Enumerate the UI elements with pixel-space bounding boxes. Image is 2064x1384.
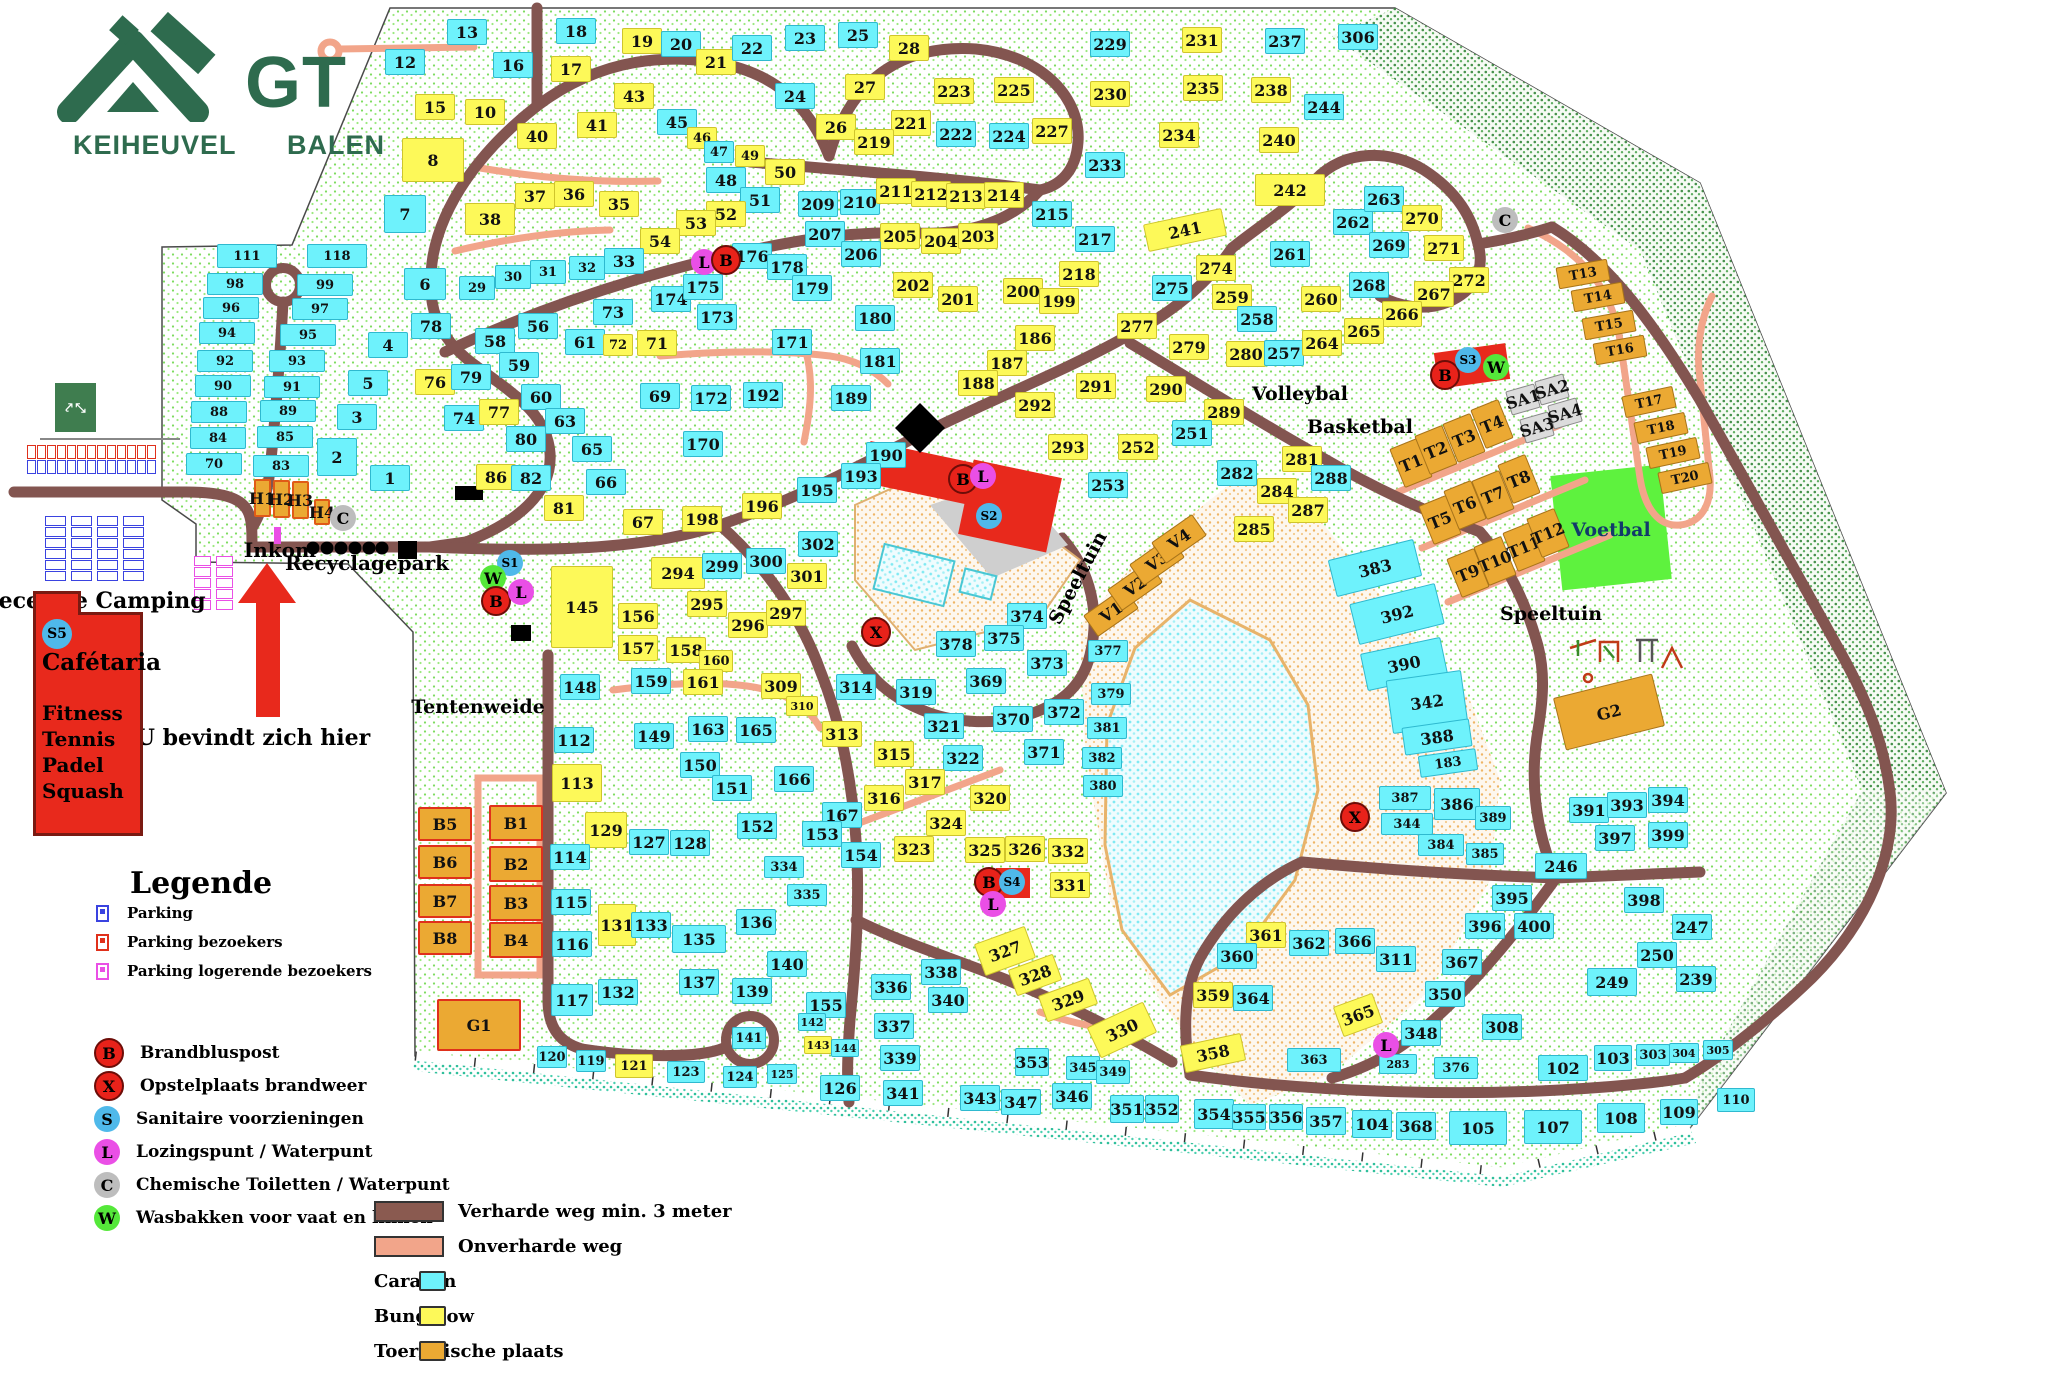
plot-135: 135 (672, 925, 726, 953)
plot-24: 24 (775, 83, 815, 109)
plot-219: 219 (854, 129, 894, 155)
plot-212: 212 (911, 181, 951, 207)
plot-192: 192 (743, 382, 783, 408)
plot-335: 335 (787, 884, 827, 906)
plot-67: 67 (623, 509, 663, 535)
plot-373: 373 (1027, 650, 1067, 676)
marker-S3: S3 (1455, 347, 1481, 373)
plot-368: 368 (1396, 1112, 1436, 1140)
plot-153: 153 (802, 821, 842, 847)
plot-61: 61 (565, 329, 605, 355)
plot-293: 293 (1048, 434, 1088, 460)
plot-207: 207 (805, 221, 845, 247)
plot-17: 17 (551, 56, 591, 82)
plot-94: 94 (199, 322, 255, 344)
legend-surface-item: Toeristische plaats (374, 1340, 732, 1362)
plot-13: 13 (447, 19, 487, 45)
plot-264: 264 (1302, 330, 1342, 356)
plot-70: 70 (186, 453, 242, 475)
plot-69: 69 (640, 383, 680, 409)
marker-L: L (970, 463, 996, 489)
plot-376: 376 (1434, 1057, 1478, 1079)
plot-66: 66 (586, 469, 626, 495)
plot-98: 98 (207, 273, 263, 295)
plot-348: 348 (1401, 1020, 1441, 1046)
plot-115: 115 (551, 889, 591, 915)
plot-395: 395 (1492, 885, 1532, 911)
plot-181: 181 (860, 348, 900, 374)
logo-balen: BALEN (287, 130, 385, 161)
plot-346: 346 (1052, 1083, 1092, 1109)
plot-83: 83 (253, 455, 309, 477)
plot-306: 306 (1338, 24, 1378, 50)
plot-159: 159 (631, 668, 671, 694)
plot-84: 84 (190, 427, 246, 449)
plot-242: 242 (1255, 174, 1325, 206)
plot-102: 102 (1538, 1055, 1588, 1081)
plot-203: 203 (958, 223, 998, 249)
marker-C: C (330, 505, 356, 531)
plot-204: 204 (921, 228, 961, 254)
marker-X: X (1340, 802, 1370, 832)
plot-257: 257 (1264, 340, 1304, 366)
plot-54: 54 (640, 228, 680, 254)
plot-311: 311 (1376, 946, 1416, 972)
plot-148: 148 (560, 674, 600, 700)
parking-grid (45, 516, 144, 581)
plot-B1: B1 (489, 805, 543, 841)
plot-119: 119 (576, 1050, 606, 1072)
plot-129: 129 (585, 812, 627, 848)
plot-110: 110 (1717, 1088, 1755, 1112)
plot-343: 343 (960, 1085, 1000, 1111)
cafetaria-line: Squash (42, 778, 134, 804)
plot-250: 250 (1637, 942, 1677, 968)
plot-51: 51 (740, 187, 780, 213)
plot-367: 367 (1442, 949, 1482, 975)
plot-260: 260 (1301, 286, 1341, 312)
plot-270: 270 (1402, 205, 1442, 231)
plot-60: 60 (521, 384, 561, 410)
plot-297: 297 (766, 600, 806, 626)
plot-56: 56 (518, 313, 558, 339)
plot-113: 113 (552, 764, 602, 802)
plot-154: 154 (841, 842, 881, 868)
plot-387: 387 (1379, 786, 1431, 810)
plot-357: 357 (1306, 1107, 1346, 1135)
plot-H3: H3 (292, 481, 309, 519)
marker-X: X (861, 617, 891, 647)
plot-303: 303 (1636, 1044, 1670, 1066)
plot-313: 313 (822, 721, 862, 747)
legend-surfaces: Verharde weg min. 3 meterOnverharde wegC… (374, 1200, 732, 1362)
plot-336: 336 (871, 974, 911, 1000)
plot-385: 385 (1466, 843, 1504, 865)
plot-63: 63 (545, 408, 585, 434)
plot-37: 37 (515, 183, 555, 209)
plot-339: 339 (880, 1045, 920, 1071)
plot-30: 30 (495, 265, 531, 289)
plot-12: 12 (385, 49, 425, 75)
plot-157: 157 (618, 635, 658, 661)
plot-381: 381 (1087, 717, 1127, 739)
legend-title: Legende (130, 866, 272, 901)
plot-92: 92 (197, 350, 253, 372)
plot-263: 263 (1364, 186, 1404, 212)
plot-275: 275 (1152, 275, 1192, 301)
plot-321: 321 (924, 713, 964, 739)
plot-237: 237 (1265, 28, 1305, 54)
plot-221: 221 (891, 110, 931, 136)
plot-53: 53 (676, 210, 716, 236)
plot-49: 49 (735, 145, 765, 167)
plot-118: 118 (307, 244, 367, 268)
logo-keiheuvel: KEIHEUVEL (73, 130, 237, 161)
plot-76: 76 (415, 369, 455, 395)
plot-359: 359 (1193, 982, 1233, 1008)
plot-140: 140 (767, 951, 807, 977)
plot-262: 262 (1333, 209, 1373, 235)
plot-305: 305 (1703, 1040, 1733, 1060)
plot-268: 268 (1349, 272, 1389, 298)
plot-302: 302 (798, 531, 838, 557)
plot-319: 319 (896, 679, 936, 705)
s5-badge: S5 (42, 619, 72, 649)
plot-186: 186 (1015, 325, 1055, 351)
plot-B6: B6 (418, 845, 472, 879)
plot-21: 21 (696, 49, 736, 75)
plot-394: 394 (1648, 787, 1688, 813)
cafetaria-card: S5 Cafétaria Fitness Tennis Padel Squash (33, 612, 143, 836)
marker-W: W (1483, 354, 1509, 380)
plot-314: 314 (836, 674, 876, 700)
plot-90: 90 (195, 375, 251, 397)
plot-393: 393 (1607, 792, 1647, 818)
plot-165: 165 (736, 717, 776, 743)
logo: GT KEIHEUVEL BALEN (55, 12, 385, 126)
plot-97: 97 (292, 298, 348, 320)
cafetaria-line: Tennis (42, 726, 134, 752)
plot-22: 22 (732, 35, 772, 61)
plot-73: 73 (593, 299, 633, 325)
legend-surface-item: Verharde weg min. 3 meter (374, 1200, 732, 1222)
plot-58: 58 (475, 328, 515, 354)
plot-36: 36 (554, 181, 594, 207)
plot-32: 32 (569, 256, 605, 280)
plot-89: 89 (260, 400, 316, 422)
plot-82: 82 (511, 465, 551, 491)
label-you-are-here: U bevindt zich hier (136, 725, 370, 751)
marker-L: L (1373, 1032, 1399, 1058)
plot-227: 227 (1032, 118, 1072, 144)
plot-399: 399 (1648, 822, 1688, 848)
plot-340: 340 (928, 987, 968, 1013)
plot-141: 141 (732, 1027, 766, 1049)
plot-350: 350 (1425, 981, 1465, 1007)
plot-349: 349 (1096, 1060, 1130, 1084)
plot-240: 240 (1259, 127, 1299, 153)
plot-59: 59 (499, 352, 539, 378)
plot-279: 279 (1169, 334, 1209, 360)
plot-351: 351 (1110, 1095, 1144, 1123)
plot-234: 234 (1159, 122, 1199, 148)
plot-400: 400 (1514, 913, 1554, 939)
plot-266: 266 (1382, 301, 1422, 327)
plot-294: 294 (651, 557, 705, 589)
plot-304: 304 (1669, 1043, 1699, 1063)
plot-205: 205 (880, 223, 920, 249)
plot-380: 380 (1083, 775, 1123, 797)
marker-C: C (1492, 207, 1518, 233)
plot-308: 308 (1482, 1014, 1522, 1040)
plot-143: 143 (804, 1036, 832, 1054)
label-receptie-camping: Receptie Camping (0, 588, 206, 614)
plot-288: 288 (1311, 465, 1351, 491)
plot-33: 33 (604, 248, 644, 274)
plot-223: 223 (934, 78, 974, 104)
marker-L: L (980, 891, 1006, 917)
legend-symbol-item: XOpstelplaats brandweer (94, 1073, 450, 1099)
plot-209: 209 (798, 191, 838, 217)
plot-354: 354 (1194, 1099, 1234, 1129)
plot-213: 213 (946, 183, 986, 209)
plot-156: 156 (618, 603, 658, 629)
plot-132: 132 (598, 979, 638, 1005)
plot-211: 211 (876, 178, 916, 204)
plot-285: 285 (1234, 516, 1274, 542)
plot-271: 271 (1424, 235, 1464, 261)
plot-320: 320 (970, 785, 1010, 811)
plot-224: 224 (989, 123, 1029, 149)
plot-163: 163 (688, 716, 728, 742)
plot-95: 95 (280, 324, 336, 346)
plot-88: 88 (191, 401, 247, 423)
plot-229: 229 (1090, 31, 1130, 57)
plot-121: 121 (615, 1054, 653, 1078)
plot-282: 282 (1217, 460, 1257, 486)
plot-189: 189 (831, 385, 871, 411)
plot-233: 233 (1085, 152, 1125, 178)
plot-96: 96 (203, 297, 259, 319)
plot-77: 77 (479, 399, 519, 425)
plot-325: 325 (965, 837, 1005, 863)
plot-139: 139 (732, 978, 772, 1004)
plot-198: 198 (682, 506, 722, 532)
label-volleybal: Volleybal (1252, 383, 1348, 405)
legend-surface-item: Onverharde weg (374, 1235, 732, 1257)
plot-258: 258 (1237, 306, 1277, 332)
plot-261: 261 (1270, 241, 1310, 267)
plot-117: 117 (551, 984, 593, 1016)
plot-299: 299 (702, 553, 742, 579)
plot-363: 363 (1287, 1048, 1341, 1072)
plot-200: 200 (1003, 278, 1043, 304)
plot-78: 78 (411, 313, 451, 339)
plot-231: 231 (1182, 27, 1222, 53)
you-are-here-arrow (238, 563, 296, 603)
plot-384: 384 (1418, 834, 1464, 856)
plot-26: 26 (816, 114, 856, 140)
plot-86: 86 (476, 464, 516, 490)
plot-G1: G1 (437, 999, 521, 1051)
plot-175: 175 (683, 274, 723, 300)
plot-149: 149 (634, 723, 674, 749)
plot-386: 386 (1434, 788, 1480, 820)
plot-331: 331 (1050, 872, 1090, 898)
plot-91: 91 (264, 376, 320, 398)
cafetaria-line: Padel (42, 752, 134, 778)
plot-291: 291 (1076, 373, 1116, 399)
logo-gt: GT (245, 42, 347, 124)
cafetaria-title: Cafétaria (42, 649, 134, 676)
plot-127: 127 (629, 829, 669, 855)
plot-23: 23 (785, 25, 825, 51)
plot-272: 272 (1449, 267, 1489, 293)
plot-218: 218 (1059, 261, 1099, 287)
plot-28: 28 (889, 35, 929, 61)
plot-16: 16 (493, 52, 533, 78)
plot-246: 246 (1535, 853, 1587, 879)
plot-25: 25 (838, 22, 878, 48)
plot-362: 362 (1289, 930, 1329, 956)
plot-29: 29 (459, 276, 495, 300)
plot-396: 396 (1465, 913, 1505, 939)
plot-99: 99 (297, 274, 353, 296)
marker-S4: S4 (999, 869, 1025, 895)
plot-79: 79 (451, 364, 491, 390)
plot-40: 40 (517, 123, 557, 149)
plot-315: 315 (874, 741, 914, 767)
plot-166: 166 (774, 766, 814, 792)
plot-50: 50 (765, 159, 805, 185)
plot-B5: B5 (418, 807, 472, 841)
plot-137: 137 (679, 969, 719, 995)
plot-114: 114 (550, 844, 590, 870)
plot-1: 1 (370, 465, 410, 491)
logo-house-icon (55, 12, 235, 122)
plot-378: 378 (936, 631, 976, 657)
plot-144: 144 (831, 1039, 859, 1057)
plot-287: 287 (1288, 497, 1328, 523)
plot-310: 310 (786, 696, 818, 716)
plot-93: 93 (269, 350, 325, 372)
parking-row (27, 445, 156, 459)
label-voetbal: Voetbal (1571, 519, 1650, 541)
marker-B: B (711, 245, 741, 275)
plot-124: 124 (723, 1066, 757, 1088)
plot-326: 326 (1005, 836, 1045, 862)
plot-379: 379 (1091, 683, 1131, 705)
plot-6: 6 (404, 268, 446, 300)
plot-199: 199 (1039, 288, 1079, 314)
plot-128: 128 (670, 830, 710, 856)
plot-369: 369 (966, 668, 1006, 694)
legend-parking-item: Parking bezoekers (96, 933, 372, 951)
plot-225: 225 (994, 77, 1034, 103)
plot-344: 344 (1381, 813, 1433, 835)
plot-290: 290 (1146, 376, 1186, 402)
plot-301: 301 (787, 563, 827, 589)
plot-74: 74 (444, 405, 484, 431)
plot-107: 107 (1524, 1110, 1582, 1144)
plot-244: 244 (1304, 94, 1344, 120)
plot-345: 345 (1066, 1056, 1100, 1080)
plot-180: 180 (855, 305, 895, 331)
marker-S2: S2 (976, 503, 1002, 529)
plot-355: 355 (1232, 1104, 1266, 1130)
legend-surface-item: Bungalow (374, 1305, 732, 1327)
plot-292: 292 (1015, 392, 1055, 418)
plot-B8: B8 (418, 921, 472, 955)
plot-133: 133 (631, 912, 671, 938)
plot-317: 317 (905, 769, 945, 795)
plot-188: 188 (958, 370, 998, 396)
plot-5: 5 (348, 370, 388, 396)
plot-171: 171 (772, 329, 812, 355)
plot-41: 41 (577, 112, 617, 138)
plot-123: 123 (667, 1061, 705, 1083)
plot-375: 375 (984, 625, 1024, 651)
plot-371: 371 (1024, 739, 1064, 765)
plot-103: 103 (1594, 1045, 1632, 1071)
plot-323: 323 (894, 836, 934, 862)
legend-parking-item: Parking logerende bezoekers (96, 962, 372, 980)
plot-265: 265 (1344, 318, 1384, 344)
label-basketbal: Basketbal (1307, 416, 1413, 438)
plot-152: 152 (737, 813, 777, 839)
plot-252: 252 (1118, 434, 1158, 460)
plot-108: 108 (1597, 1103, 1645, 1133)
plot-179: 179 (792, 275, 832, 301)
plot-136: 136 (736, 909, 776, 935)
plot-332: 332 (1048, 838, 1088, 864)
plot-125: 125 (767, 1064, 797, 1084)
plot-337: 337 (874, 1013, 914, 1039)
plot-H4: H4 (314, 499, 330, 525)
plot-8: 8 (402, 138, 464, 182)
plot-300: 300 (746, 548, 786, 574)
plot-202: 202 (893, 272, 933, 298)
plot-47: 47 (704, 141, 734, 163)
plot-35: 35 (599, 191, 639, 217)
plot-111: 111 (217, 244, 277, 268)
plot-230: 230 (1090, 81, 1130, 107)
plot-B7: B7 (418, 884, 472, 918)
plot-277: 277 (1117, 313, 1157, 339)
plot-353: 353 (1015, 1048, 1049, 1076)
label-tentenweide: Tentenweide (411, 696, 545, 718)
plot-295: 295 (687, 591, 727, 617)
legend-symbol-item: CChemische Toiletten / Waterpunt (94, 1172, 450, 1198)
legend-surface-item: Caravan (374, 1270, 732, 1292)
plot-112: 112 (554, 727, 594, 753)
plot-105: 105 (1449, 1111, 1507, 1145)
plot-215: 215 (1032, 201, 1072, 227)
plot-20: 20 (661, 31, 701, 57)
plot-372: 372 (1044, 699, 1084, 725)
plot-38: 38 (465, 203, 515, 235)
plot-19: 19 (622, 28, 662, 54)
plot-316: 316 (864, 785, 904, 811)
plot-377: 377 (1088, 640, 1128, 662)
plot-193: 193 (841, 463, 881, 489)
assembly-point-icon: ⤤ ⤡ (55, 383, 96, 432)
plot-370: 370 (993, 706, 1033, 732)
plot-7: 7 (384, 195, 426, 233)
plot-239: 239 (1676, 966, 1716, 992)
plot-173: 173 (697, 304, 737, 330)
plot-296: 296 (728, 612, 768, 638)
